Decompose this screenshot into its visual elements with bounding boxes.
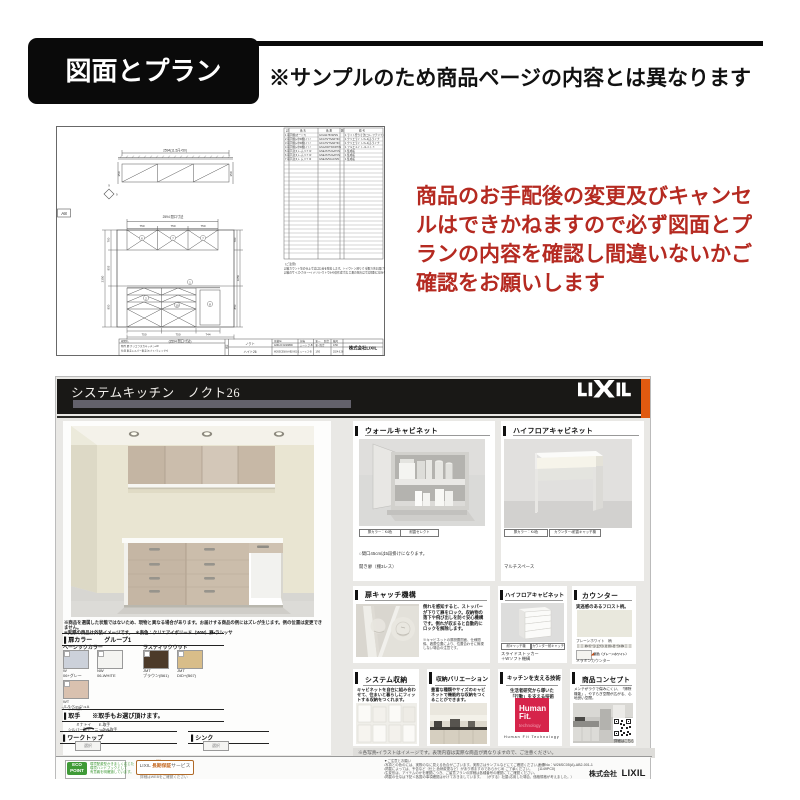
svg-text:7 吊戸割スレ ムリミ R: 7 吊戸割スレ ムリミ R <box>285 157 311 161</box>
svg-text:GNEJS/5JAATI/N: GNEJS/5JAATI/N <box>319 157 339 161</box>
svg-text:426120 0229890: 426120 0229890 <box>274 344 293 347</box>
svg-text:(ご注意): (ご注意) <box>285 261 296 266</box>
svg-text:ノクト: ノクト <box>245 341 255 346</box>
svg-text:850: 850 <box>233 304 237 309</box>
svg-text:GXH1175XWSN: GXH1175XWSN <box>319 133 338 137</box>
svg-text:1 集成板: 1 集成板 <box>345 157 355 161</box>
svg-text:品 番: 品 番 <box>326 129 332 133</box>
svg-text:担当: 担当 <box>300 339 306 343</box>
svg-text:備 考: 備 考 <box>359 129 365 133</box>
svg-text:2594 間口寸法: 2594 間口寸法 <box>163 214 185 219</box>
svg-text:照合: 照合 <box>324 339 330 343</box>
svg-text:2024.6.28: 2024.6.28 <box>333 352 344 354</box>
svg-text:750: 750 <box>139 224 144 228</box>
svg-text:750: 750 <box>141 333 146 337</box>
svg-text:GNEJS75JAATI/N: GNEJS75JAATI/N <box>319 153 340 157</box>
svg-text:2350: 2350 <box>101 275 105 282</box>
svg-text:850: 850 <box>107 304 111 309</box>
svg-text:10: 10 <box>175 303 179 307</box>
svg-text:1 フルエメイト-ユ-ニトミ: 1 フルエメイト-ユ-ニトミ <box>345 145 375 149</box>
svg-text:現場名: 現場名 <box>121 339 129 343</box>
svg-text:700: 700 <box>233 237 237 242</box>
svg-text:750: 750 <box>175 333 180 337</box>
svg-text:株式会社LIXIL: 株式会社LIXIL <box>349 345 378 352</box>
svg-text:記載のサイズ・カラー・イメリル・ワトウ&45倍作成寸法 工番: 記載のサイズ・カラー・イメリル・ワトウ&45倍作成寸法 工番の場合は寸法規則に基… <box>284 271 385 275</box>
svg-text:750: 750 <box>200 224 205 228</box>
svg-text:1/50: 1/50 <box>333 344 338 347</box>
svg-text:見積№: 見積№ <box>274 339 282 343</box>
svg-text:1/50: 1/50 <box>316 352 321 354</box>
svg-text:750: 750 <box>170 224 175 228</box>
svg-text:仕様 取手シルバー取手(ミナト・ラシッサ+): 仕様 取手シルバー取手(ミナト・ラシッサ+) <box>121 349 168 353</box>
svg-text:1 集成板: 1 集成板 <box>345 149 355 153</box>
svg-text:新一: 新一 <box>316 339 322 343</box>
svg-text:GKG75/TSARTIN: GKG75/TSARTIN <box>319 141 340 145</box>
svg-text:GNEJS75JAATI/N: GNEJS75JAATI/N <box>319 149 340 153</box>
svg-text:1650: 1650 <box>236 274 240 281</box>
svg-text:1 集成板: 1 集成板 <box>345 153 355 157</box>
svg-text:1 吊戸棚(オート?): 1 吊戸棚(オート?) <box>285 133 306 137</box>
svg-text:新- 照合: 新- 照合 <box>316 343 326 347</box>
svg-text:GKG75/TSARTIN: GKG75/TSARTIN <box>319 137 340 141</box>
svg-text:物件 扉:クリエラスカキッチン+W: 物件 扉:クリエラスカキッチン+W <box>121 344 159 348</box>
svg-text:記載カウント等の仕上寸法は公差を除去します。トイウトン通りで: 記載カウント等の仕上寸法は公差を除去します。トイウトン通りで 受取り先お届けする… <box>284 267 385 271</box>
svg-text:744: 744 <box>205 333 210 337</box>
svg-text:5 吊戸割スレ-ムリミ R: 5 吊戸割スレ-ムリミ R <box>285 149 311 153</box>
svg-text:W26SC05(A)-AB2-001-1: W26SC05(A)-AB2-001-1 <box>274 351 300 354</box>
svg-text:855: 855 <box>107 265 111 270</box>
svg-text:ハイト26: ハイト26 <box>243 350 256 354</box>
svg-text:A8: A8 <box>61 211 67 216</box>
svg-text:1 クリエライト/ル-4ほ-ライナ: 1 クリエライト/ル-4ほ-ライナ <box>345 141 380 145</box>
svg-text:シートフ-B: シートフ-B <box>300 343 313 347</box>
svg-text:縮尺: 縮尺 <box>333 339 339 343</box>
svg-text:GSG/00/TSWRTIN: GSG/00/TSWRTIN <box>319 145 341 149</box>
svg-text:350: 350 <box>117 171 121 176</box>
svg-text:350: 350 <box>229 171 233 176</box>
svg-text:品 名: 品 名 <box>300 129 306 133</box>
svg-text:数: 数 <box>341 129 344 133</box>
svg-text:記: 記 <box>286 129 289 133</box>
svg-text:3 吊戸棚(+中R棚)イト!: 3 吊戸棚(+中R棚)イト! <box>285 141 311 145</box>
svg-text:1 ライト登り寸法(コレ-フチリミ): 1 ライト登り寸法(コレ-フチリミ) <box>345 133 384 137</box>
svg-text:2594(11.5尺+50): 2594(11.5尺+50) <box>163 149 187 153</box>
svg-text:4 吊戸棚(+中R棚)イト!: 4 吊戸棚(+中R棚)イト! <box>285 145 311 149</box>
svg-text:1 クリエライト/ル-4ほ-ライナ: 1 クリエライト/ル-4ほ-ライナ <box>345 137 380 141</box>
svg-text:6 吊戸割スレ-ムリミ R: 6 吊戸割スレ-ムリミ R <box>285 153 311 157</box>
svg-text:700: 700 <box>107 237 111 242</box>
svg-text:2 吊戸棚(+中R棚)イト!: 2 吊戸棚(+中R棚)イト! <box>285 137 311 141</box>
